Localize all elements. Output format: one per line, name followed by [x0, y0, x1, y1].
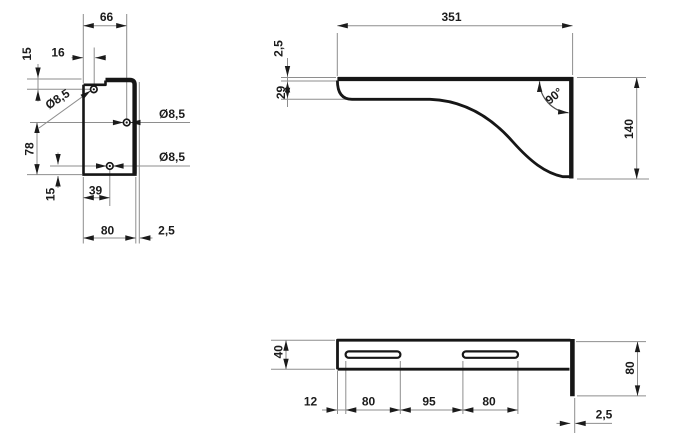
- dim-label-plate-thickness: 2,5: [158, 224, 175, 238]
- dim-label-bottom-hole-x: 39: [89, 184, 103, 198]
- slot-right: [463, 351, 518, 357]
- dim-label-hole-y-offset-top: 15: [20, 47, 34, 61]
- hole-middle-center-mark: [126, 121, 128, 123]
- dim-label-slot-offset: 12: [304, 395, 318, 409]
- dim-label-slot1-length: 80: [362, 395, 376, 409]
- dim-label-hole-y-offset-bottom: 15: [44, 188, 58, 202]
- top-plate-outline: [338, 339, 573, 396]
- hole-bottom-center-mark: [109, 165, 111, 167]
- side-dimension-lines: [288, 26, 637, 179]
- dim-label-back-plate-width: 80: [623, 361, 637, 375]
- side-view: 351 2,5 29 90° 140: [272, 10, 650, 179]
- dim-label-slot-gap: 95: [422, 395, 436, 409]
- dim-label-hole-dia-mid: Ø8,5: [159, 107, 185, 121]
- dim-label-hole-dia-top: Ø8,5: [43, 86, 73, 112]
- side-profile-outline: [337, 77, 573, 179]
- dim-label-flange-depth: 40: [271, 345, 285, 359]
- front-plate-outline: [82, 80, 136, 175]
- hole-top-center-mark: [93, 88, 95, 90]
- dim-label-plate-width: 80: [101, 224, 115, 238]
- gusset-web-curve: [337, 81, 569, 177]
- top-extension-lines: [271, 340, 646, 433]
- slot-left: [346, 351, 401, 357]
- front-view: 66 16 15 Ø8,5 Ø8,5 Ø8,5 78 39 15 80 2,5: [20, 10, 190, 244]
- dim-label-height: 140: [622, 119, 636, 139]
- dim-label-length: 351: [441, 10, 461, 24]
- plate-flange-edge: [106, 80, 135, 174]
- dim-label-lip-height: 29: [274, 86, 288, 100]
- technical-drawing-canvas: 66 16 15 Ø8,5 Ø8,5 Ø8,5 78 39 15 80 2,5: [0, 0, 695, 444]
- dim-label-top-plate-thickness: 2,5: [596, 408, 613, 422]
- plate-left-bottom-edge: [82, 85, 136, 175]
- dim-label-hole-x-offset: 16: [51, 46, 65, 60]
- dim-label-holes-span: 78: [23, 142, 37, 156]
- dim-label-hole-dia-bottom: Ø8,5: [159, 150, 185, 164]
- top-view: 40 12 80 95 80 80 2,5: [271, 339, 646, 433]
- dim-label-top-width: 66: [100, 10, 114, 24]
- dim-label-flange-thickness: 2,5: [272, 40, 286, 57]
- drawing-sheet: 66 16 15 Ø8,5 Ø8,5 Ø8,5 78 39 15 80 2,5: [0, 0, 695, 444]
- front-holes: [91, 86, 131, 169]
- dim-label-corner-angle: 90°: [543, 85, 566, 108]
- dim-label-slot2-length: 80: [482, 395, 496, 409]
